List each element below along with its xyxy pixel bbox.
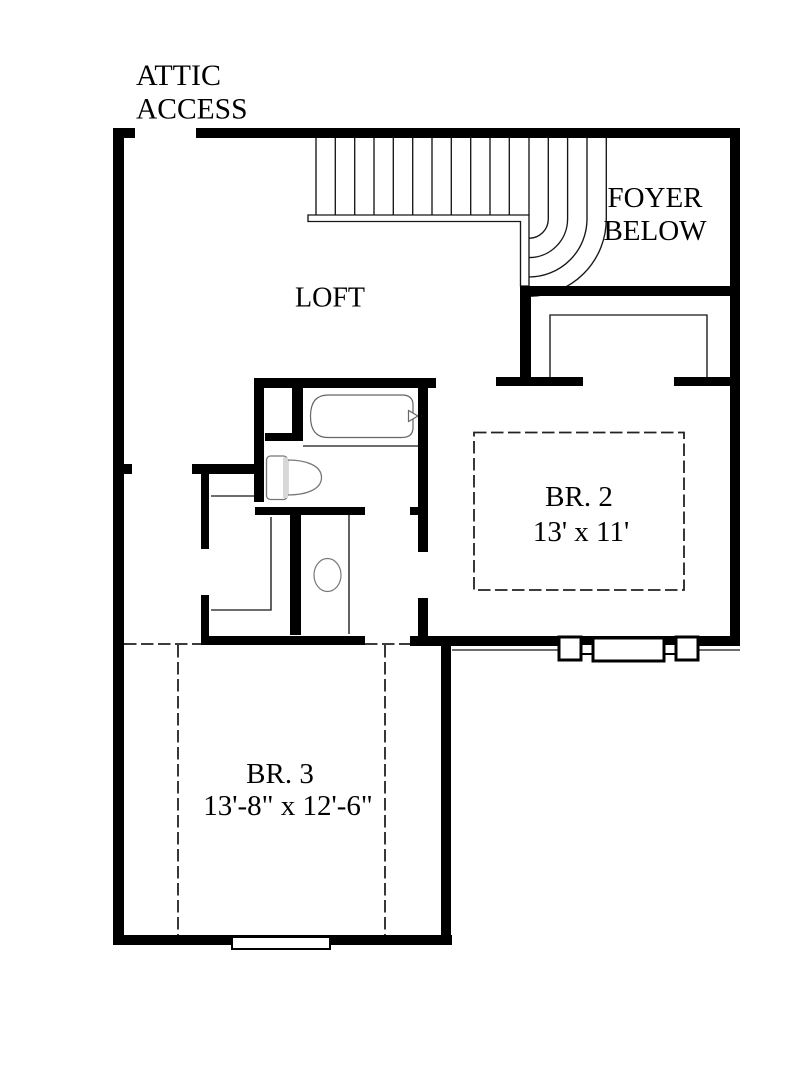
svg-text:BR. 2: BR. 2 xyxy=(545,481,613,513)
svg-text:ACCESS: ACCESS xyxy=(136,94,248,126)
svg-text:BELOW: BELOW xyxy=(603,215,707,247)
svg-text:ATTIC: ATTIC xyxy=(136,59,221,92)
svg-text:FOYER: FOYER xyxy=(607,182,703,214)
svg-text:LOFT: LOFT xyxy=(295,283,365,314)
svg-text:BR. 3: BR. 3 xyxy=(246,758,314,790)
svg-text:13'-8" x 12'-6": 13'-8" x 12'-6" xyxy=(203,790,372,822)
svg-text:13' x 11': 13' x 11' xyxy=(533,516,629,548)
